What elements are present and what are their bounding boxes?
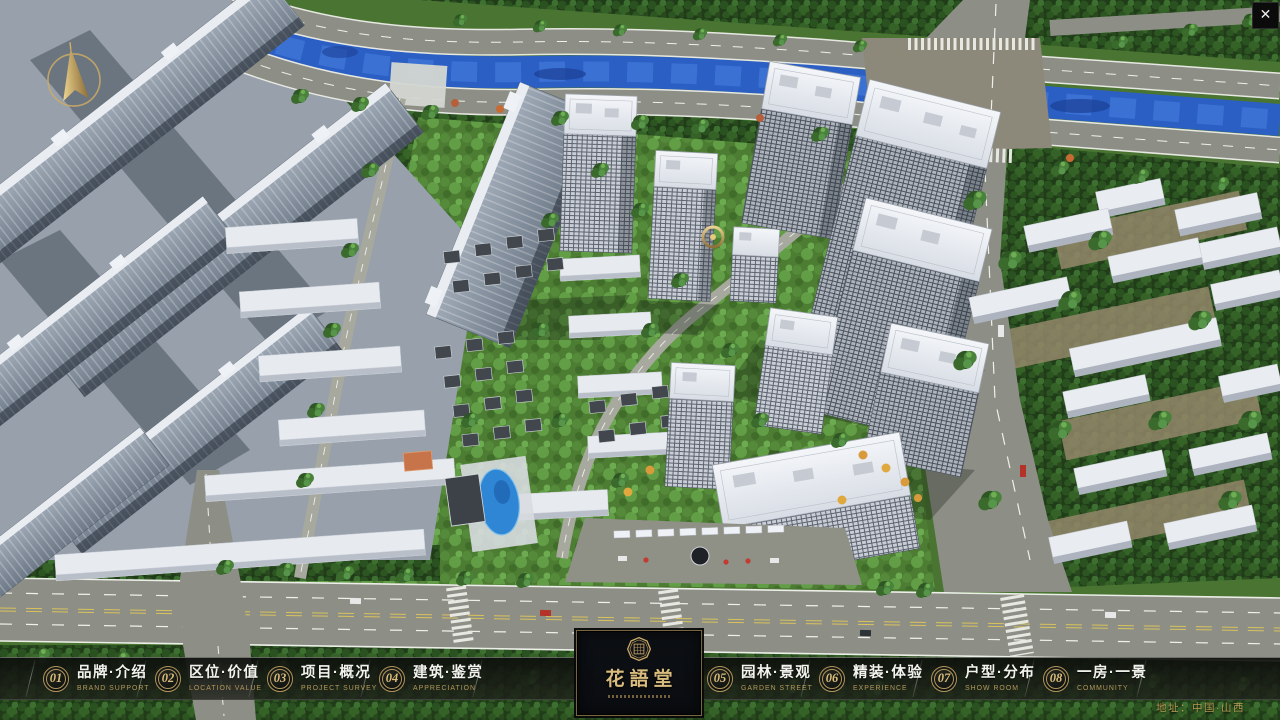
nav-item-floorplan-distribution[interactable]: 07 户型·分布SHOW ROOM	[918, 658, 1030, 699]
nav-label-en: APPRECIATION	[413, 684, 478, 691]
nav-number-badge: 08	[1043, 666, 1069, 692]
nav-item-interior-experience[interactable]: 06 精装·体验EXPERIENCE	[806, 658, 918, 699]
nav-label-zh: 建筑·鉴赏	[413, 666, 483, 681]
app-window: ✕ 01 品牌·介绍BRAND SUPPORT 02 区位·价值LOCATION…	[0, 0, 1280, 720]
nav-label-zh: 精装·体验	[853, 666, 923, 681]
nav-number-badge: 02	[155, 666, 181, 692]
nav-label-en: COMMUNITY	[1077, 684, 1142, 691]
brand-seal-icon	[626, 636, 652, 662]
nav-item-architecture[interactable]: 04 建筑·鉴赏APPRECIATION	[366, 658, 478, 699]
nav-label-en: GARDEN STREET	[741, 684, 813, 691]
nav-item-landscape[interactable]: 05 园林·景观GARDEN STREET	[694, 658, 806, 699]
nav-label-zh: 户型·分布	[965, 666, 1035, 681]
nav-label-en: BRAND SUPPORT	[77, 684, 149, 691]
address-text: 地址：中国·山西	[1156, 700, 1245, 715]
nav-number-badge: 06	[819, 666, 845, 692]
nav-label-en: SHOW ROOM	[965, 684, 1030, 691]
nav-number-badge: 05	[707, 666, 733, 692]
nav-label-en: LOCATION VALUE	[189, 684, 262, 691]
project-logo[interactable]: 花語堂	[576, 630, 702, 716]
close-button[interactable]: ✕	[1252, 2, 1279, 29]
brand-tagline	[608, 695, 670, 698]
nav-number-badge: 01	[43, 666, 69, 692]
nav-label-en: EXPERIENCE	[853, 684, 918, 691]
nav-number-badge: 07	[931, 666, 957, 692]
nav-number-badge: 04	[379, 666, 405, 692]
aerial-map-viewport[interactable]	[0, 0, 1280, 720]
nav-item-room-view[interactable]: 08 一房·一景COMMUNITY	[1030, 658, 1142, 699]
nav-label-zh: 一房·一景	[1077, 666, 1147, 681]
nav-item-brand-intro[interactable]: 01 品牌·介绍BRAND SUPPORT	[30, 658, 142, 699]
brand-name: 花語堂	[600, 664, 677, 691]
nav-item-project-overview[interactable]: 03 项目·概况PROJECT SURVEY	[254, 658, 366, 699]
nav-number-badge: 03	[267, 666, 293, 692]
compass-icon	[42, 38, 106, 114]
nav-item-location-value[interactable]: 02 区位·价值LOCATION VALUE	[142, 658, 254, 699]
entrance-gate	[565, 518, 862, 585]
